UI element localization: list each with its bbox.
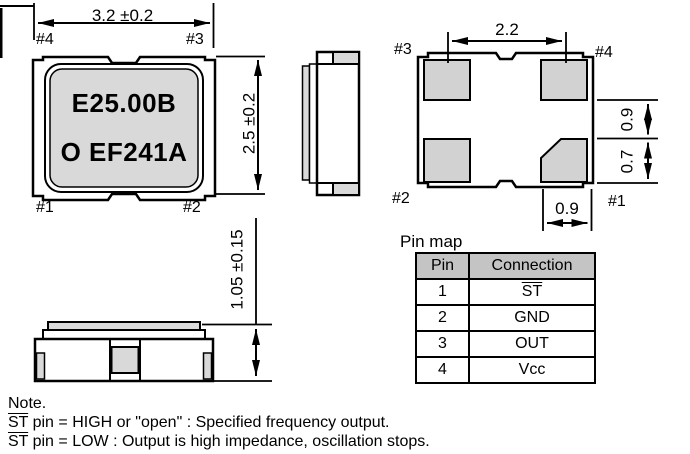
table-row: 2 GND: [416, 305, 595, 331]
front-pin3-label: #3: [186, 32, 204, 48]
pin-connection: ST: [469, 279, 595, 305]
pin-map-title: Pin map: [400, 233, 462, 250]
frame-fragment: [0, 6, 34, 58]
pad-3: [424, 60, 470, 100]
pin-number: 2: [416, 305, 469, 331]
note-line-1: ST pin = HIGH or "open" : Specified freq…: [8, 413, 430, 432]
pin-number: 3: [416, 331, 469, 357]
table-row: 1 ST: [416, 279, 595, 305]
side-view-middle: [303, 52, 360, 195]
table-row: 3 OUT: [416, 331, 595, 357]
pin-map-header-pin: Pin: [416, 253, 469, 279]
dim-pad-width-label: 0.9: [547, 200, 587, 217]
front-view: [33, 57, 215, 200]
chip-marking-line1: E25.00B: [50, 90, 198, 116]
pin-connection: OUT: [469, 331, 595, 357]
pin-number: 4: [416, 357, 469, 383]
pin-map-header-connection: Connection: [469, 253, 595, 279]
front-pin4-label: #4: [36, 32, 54, 48]
note-title: Note.: [8, 394, 430, 413]
front-pin2-label: #2: [183, 200, 201, 216]
chip-marking-line2: O EF241A: [50, 139, 198, 165]
bottom-pin4-label: #4: [595, 45, 613, 61]
pin-map-header-row: Pin Connection: [416, 253, 595, 279]
dim-height-label: 2.5 ±0.2: [241, 74, 258, 174]
note-line-2: ST pin = LOW : Output is high impedance,…: [8, 432, 430, 451]
bottom-pin3-label: #3: [394, 42, 412, 58]
pin-map-table: Pin Connection 1 ST 2 GND 3 OUT 4 Vcc: [415, 252, 596, 384]
bottom-view: [418, 53, 593, 187]
pin-number: 1: [416, 279, 469, 305]
dim-thickness-label: 1.05 ±0.15: [229, 210, 246, 330]
front-lid-inner: [50, 69, 198, 187]
dim-width-label: 3.2 ±0.2: [55, 7, 190, 24]
pad-2: [424, 139, 470, 182]
front-pin1-label: #1: [36, 200, 54, 216]
pad-4: [541, 60, 587, 100]
pin-connection: GND: [469, 305, 595, 331]
table-row: 4 Vcc: [416, 357, 595, 383]
pin-connection: Vcc: [469, 357, 595, 383]
dim-pad-height-label: 0.7: [619, 142, 636, 182]
dim-pad-pitch-label: 2.2: [487, 21, 527, 38]
technical-drawing-canvas: [0, 0, 690, 454]
oscillator-package-drawing: 3.2 ±0.2 2.5 ±0.2 #4 #3 #1 #2 E25.00B O …: [0, 0, 690, 454]
bottom-pin2-label: #2: [392, 191, 410, 207]
note-block: Note. ST pin = HIGH or "open" : Specifie…: [8, 394, 430, 451]
bottom-pin1-label: #1: [608, 194, 626, 210]
side-view-bottom: [35, 322, 213, 381]
dim-pad-gap-label: 0.9: [619, 100, 636, 140]
